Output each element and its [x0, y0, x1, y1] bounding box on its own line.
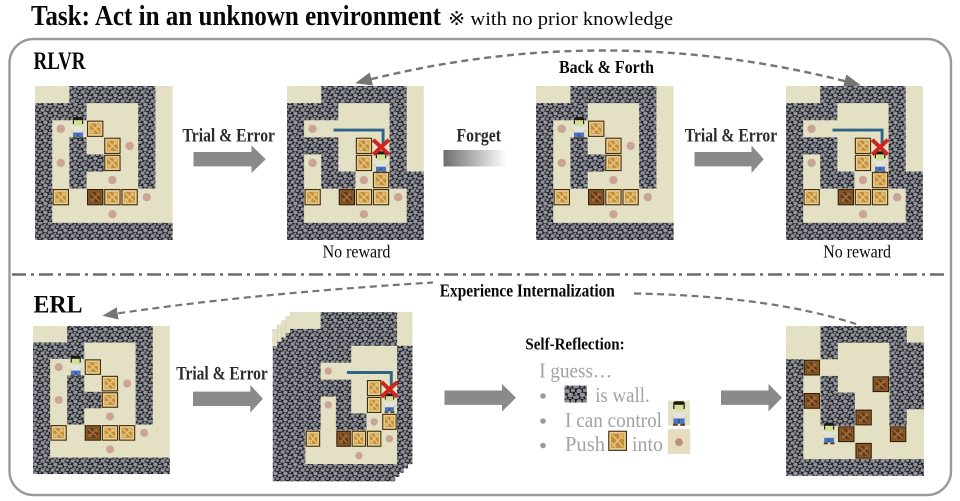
svg-text:Forget: Forget: [457, 126, 502, 147]
svg-text:No reward: No reward: [823, 242, 891, 262]
svg-text:Self-Reflection:: Self-Reflection:: [525, 335, 624, 354]
svg-text:is wall.: is wall.: [595, 383, 650, 407]
svg-text:※ with no prior knowledge: ※ with no prior knowledge: [448, 9, 673, 30]
svg-text:Trial & Error: Trial & Error: [685, 126, 778, 147]
svg-text:Back & Forth: Back & Forth: [559, 57, 654, 77]
svg-text:No reward: No reward: [323, 242, 391, 262]
svg-text:Push: Push: [565, 432, 605, 456]
svg-text:RLVR: RLVR: [34, 46, 86, 75]
svg-text:I guess…: I guess…: [539, 359, 612, 383]
svg-text:ERL: ERL: [34, 290, 83, 319]
svg-text:Trial & Error: Trial & Error: [176, 364, 268, 385]
svg-text:I can control: I can control: [565, 408, 662, 432]
svg-text:Experience Internalization: Experience Internalization: [440, 281, 615, 301]
svg-text:Task: Act in an unknown enviro: Task: Act in an unknown environment: [31, 1, 442, 32]
svg-text:Trial & Error: Trial & Error: [183, 126, 276, 147]
svg-text:into: into: [632, 432, 663, 456]
